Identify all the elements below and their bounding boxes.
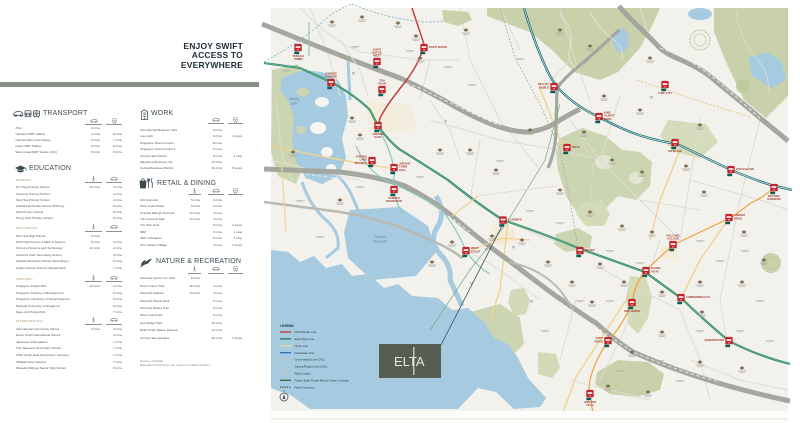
svg-text:VISTA: VISTA (651, 269, 659, 273)
svg-text:MAJU: MAJU (572, 145, 580, 149)
svg-text:Circle Line: Circle Line (295, 344, 309, 348)
svg-text:Rail Corridor: Rail Corridor (295, 372, 311, 376)
svg-text:GUAN: GUAN (378, 82, 386, 86)
svg-text:COMMONWEALTH: COMMONWEALTH (686, 295, 710, 299)
svg-text:LEGEND:: LEGEND: (280, 324, 294, 328)
svg-text:BUKIT BATOK: BUKIT BATOK (429, 45, 447, 49)
svg-text:COAST: COAST (471, 249, 481, 253)
svg-text:RIDGE: RIDGE (594, 339, 603, 343)
svg-text:Jurong: Jurong (289, 97, 299, 101)
svg-text:WORLD: WORLD (539, 85, 549, 89)
svg-text:CLEMENTI: CLEMENTI (508, 217, 522, 221)
svg-text:EAST: EAST (374, 135, 382, 139)
svg-text:Park Connector: Park Connector (295, 385, 315, 389)
svg-text:PARK: PARK (294, 57, 301, 61)
svg-text:Pandan: Pandan (375, 235, 386, 239)
svg-text:PARK: PARK (604, 117, 611, 121)
svg-text:Lake: Lake (291, 102, 298, 106)
svg-text:DISTRICT: DISTRICT (355, 161, 368, 165)
svg-text:HALL: HALL (399, 168, 407, 172)
svg-text:DOVER: DOVER (585, 248, 595, 252)
svg-text:WEST: WEST (373, 54, 381, 58)
svg-text:QUEENSTOWN: QUEENSTOWN (704, 338, 724, 342)
svg-text:Future Bukit Timah-Rochor Gree: Future Bukit Timah-Rochor Green Corridor (295, 378, 350, 382)
svg-text:GARDENS: GARDENS (767, 197, 781, 201)
svg-text:GARDEN: GARDEN (325, 75, 337, 79)
svg-text:SIXTH AVE: SIXTH AVE (668, 149, 682, 153)
svg-text:VILLA: VILLA (586, 403, 594, 407)
svg-text:East-West Line: East-West Line (295, 337, 315, 341)
svg-text:Jurong Region Line (U/C): Jurong Region Line (U/C) (295, 365, 328, 369)
svg-text:TURF CITY: TURF CITY (658, 91, 672, 95)
svg-text:North-South Line: North-South Line (295, 330, 317, 334)
svg-text:Downtown Line: Downtown Line (295, 351, 315, 355)
svg-text:VILLAGE: VILLAGE (667, 237, 679, 241)
svg-text:Reservoir: Reservoir (373, 240, 388, 244)
svg-text:Cross Island Line (U/C): Cross Island Line (U/C) (295, 358, 325, 362)
svg-text:RESERVOIR: RESERVOIR (386, 199, 402, 203)
svg-text:ROAD: ROAD (734, 216, 742, 220)
svg-text:ELTA: ELTA (394, 354, 425, 369)
svg-text:ONE-NORTH: ONE-NORTH (624, 309, 640, 313)
svg-text:TAN KAH KEE: TAN KAH KEE (736, 167, 754, 171)
